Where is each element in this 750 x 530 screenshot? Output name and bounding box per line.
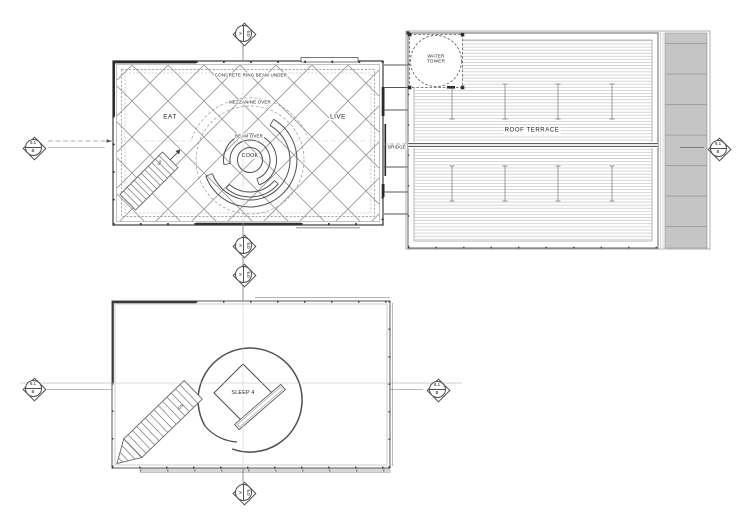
marker-number: 6.0 <box>243 485 251 500</box>
marker-letter: A <box>236 267 243 282</box>
bridge-label: BRIDGE <box>387 144 407 149</box>
marker-letter: B <box>430 390 445 397</box>
architectural-plan-canvas <box>0 0 750 530</box>
marker-number: 6.1 <box>26 381 41 389</box>
marker-letter: B <box>26 389 41 396</box>
mezzanine-over-note: MEZZANINE OVER <box>228 99 272 104</box>
marker-letter: B <box>711 149 726 156</box>
room-label-cook: COOK <box>241 153 260 159</box>
roof-terrace-label: ROOF TERRACE <box>504 128 561 135</box>
room-label-eat: EAT <box>162 113 177 120</box>
ring-beam-note: CONCRETE RING BEAM UNDER <box>214 72 288 77</box>
marker-letter: A <box>236 26 243 41</box>
marker-number: 6.1 <box>26 140 41 148</box>
marker-letter: A <box>236 238 243 253</box>
water-tower-label: WATER TOWER <box>426 54 446 65</box>
marker-number: 6.1 <box>711 141 726 149</box>
diagrid-roof-structure <box>117 65 379 221</box>
marker-letter: A <box>236 485 243 500</box>
datum-arrow <box>107 139 113 143</box>
marker-number: 6.0 <box>243 238 251 253</box>
marker-number: 6.0 <box>243 26 251 41</box>
bridge-structure <box>384 65 408 214</box>
beam-over-note: BEAM OVER <box>234 133 264 138</box>
room-label-live: LIVE <box>329 113 347 120</box>
marker-letter: B <box>26 148 41 155</box>
upper-plan-walls <box>113 58 385 228</box>
marker-number: 6.0 <box>243 267 251 282</box>
drawing-sheet: CONCRETE RING BEAM UNDER MEZZANINE OVER … <box>0 0 750 530</box>
marker-number: 6.1 <box>430 382 445 390</box>
room-label-sleep4: SLEEP 4 <box>230 390 255 396</box>
deck-band <box>140 469 390 473</box>
clerestory-window <box>301 58 358 63</box>
